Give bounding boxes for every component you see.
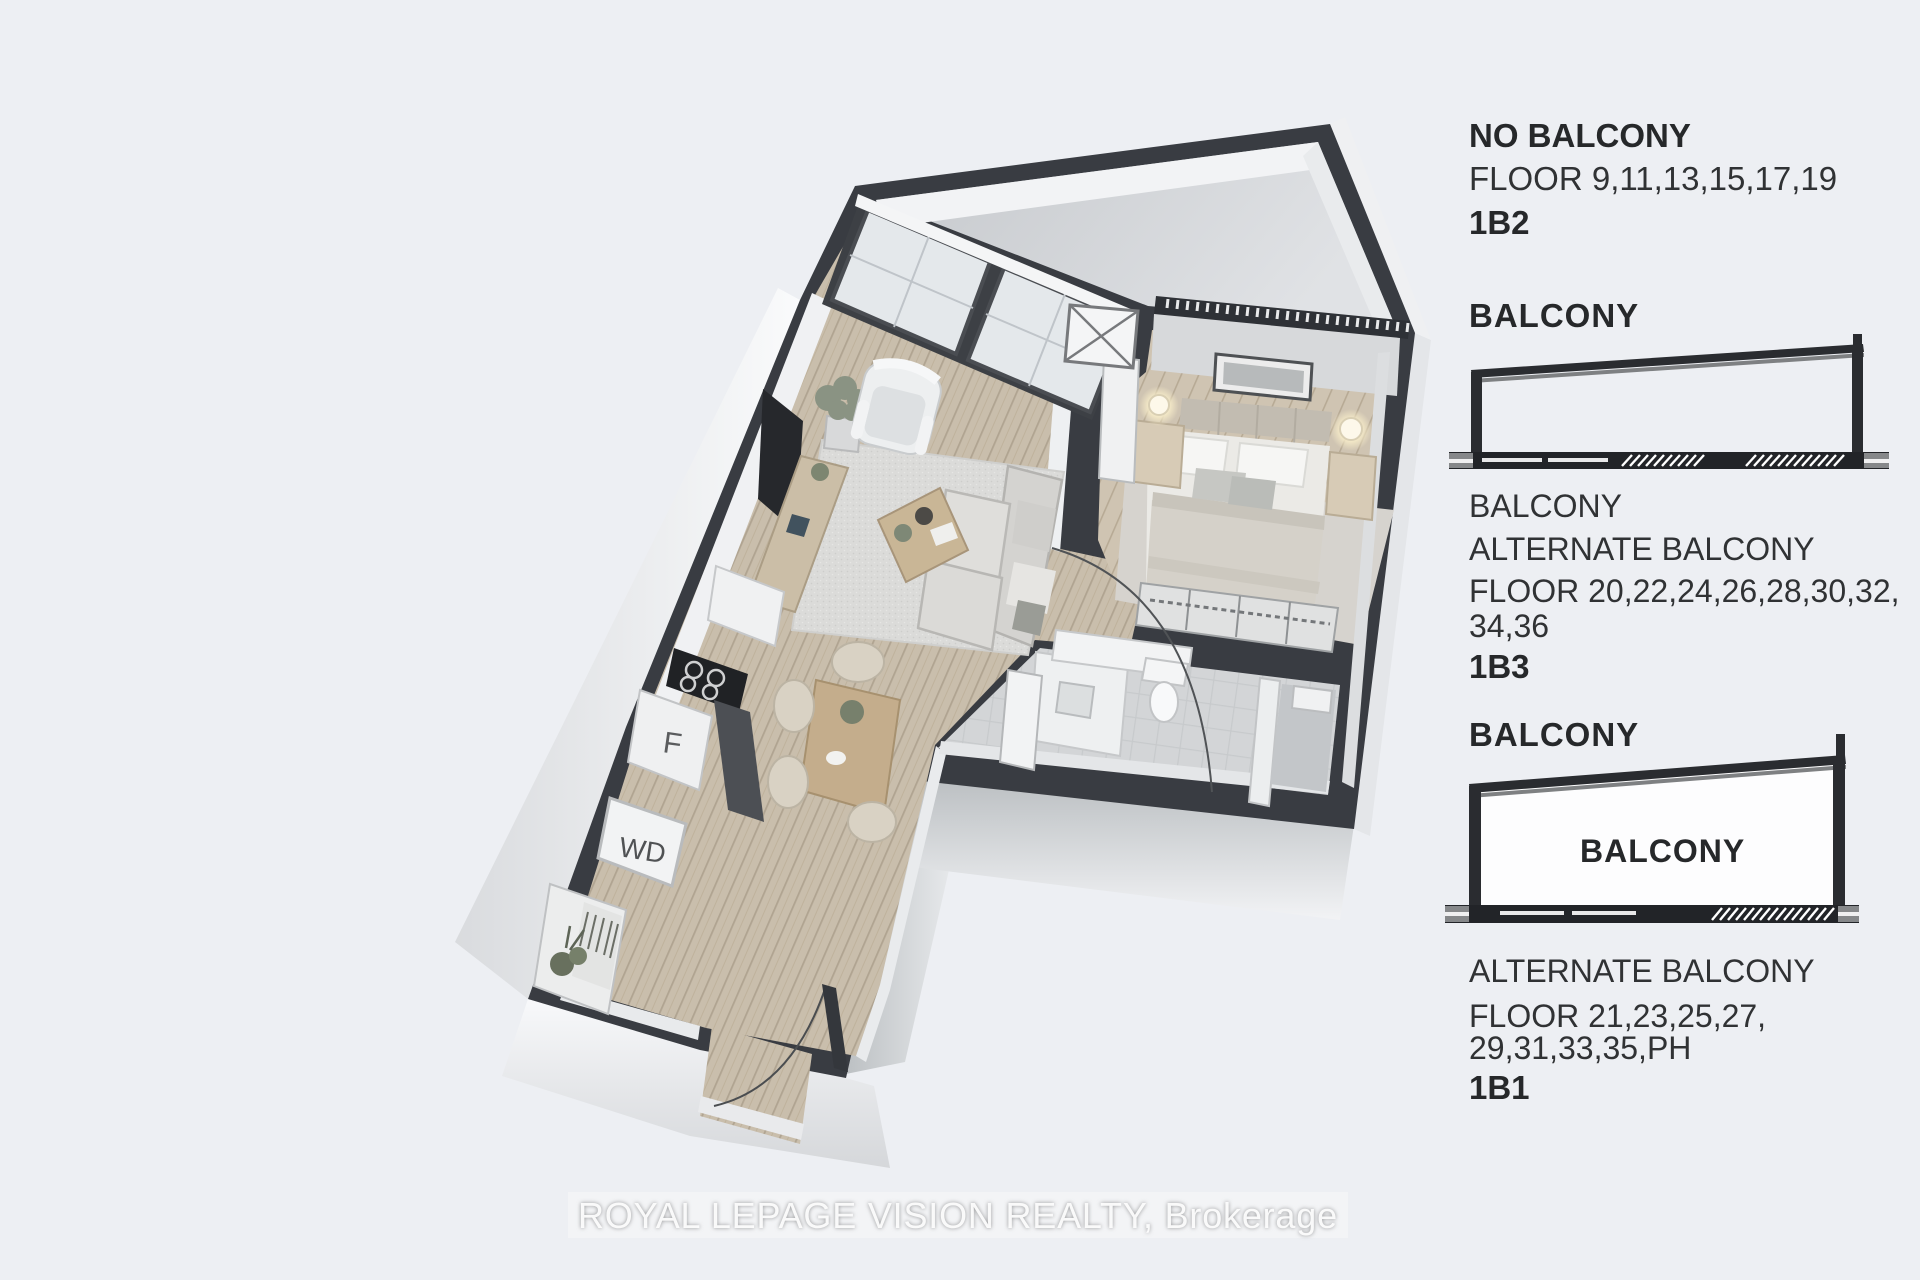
- svg-text:FLOOR 9,11,13,15,17,19: FLOOR 9,11,13,15,17,19: [1469, 160, 1837, 197]
- svg-text:BALCONY: BALCONY: [1469, 488, 1622, 524]
- svg-text:ROYAL LEPAGE VISION REALTY, Br: ROYAL LEPAGE VISION REALTY, Brokerage: [578, 1195, 1338, 1236]
- svg-text:1B1: 1B1: [1469, 1069, 1530, 1106]
- svg-text:29,31,33,35,PH: 29,31,33,35,PH: [1469, 1030, 1691, 1066]
- svg-text:BALCONY: BALCONY: [1469, 297, 1639, 334]
- svg-text:BALCONY: BALCONY: [1469, 716, 1639, 753]
- svg-text:BALCONY: BALCONY: [1580, 833, 1745, 869]
- svg-text:FLOOR 20,22,24,26,28,30,32,: FLOOR 20,22,24,26,28,30,32,: [1469, 573, 1900, 609]
- svg-text:ALTERNATE BALCONY: ALTERNATE BALCONY: [1469, 531, 1815, 567]
- svg-text:1B2: 1B2: [1469, 204, 1530, 241]
- svg-text:FLOOR 21,23,25,27,: FLOOR 21,23,25,27,: [1469, 998, 1766, 1034]
- svg-text:34,36: 34,36: [1469, 608, 1549, 644]
- svg-text:ALTERNATE BALCONY: ALTERNATE BALCONY: [1469, 953, 1815, 989]
- svg-text:NO BALCONY: NO BALCONY: [1469, 117, 1691, 154]
- svg-text:1B3: 1B3: [1469, 648, 1530, 685]
